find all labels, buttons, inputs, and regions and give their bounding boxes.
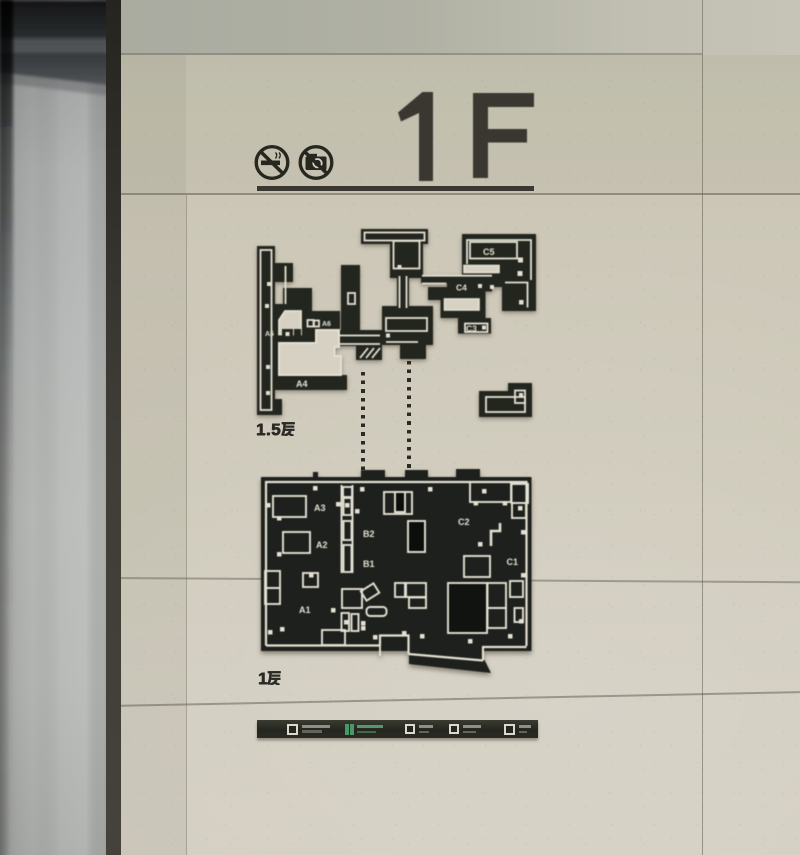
svg-text:A4: A4: [296, 379, 308, 389]
svg-text:C5: C5: [483, 247, 495, 257]
svg-text:B2: B2: [363, 529, 375, 539]
svg-text:C2: C2: [458, 517, 470, 527]
svg-text:A3: A3: [314, 503, 326, 513]
svg-text:C3: C3: [466, 324, 477, 334]
svg-text:C1: C1: [507, 557, 519, 567]
svg-text:A1: A1: [299, 605, 311, 615]
svg-text:A5: A5: [265, 331, 274, 338]
svg-text:A6: A6: [322, 321, 331, 328]
svg-text:A2: A2: [316, 540, 328, 550]
svg-text:C4: C4: [456, 283, 467, 293]
svg-text:B1: B1: [363, 559, 375, 569]
